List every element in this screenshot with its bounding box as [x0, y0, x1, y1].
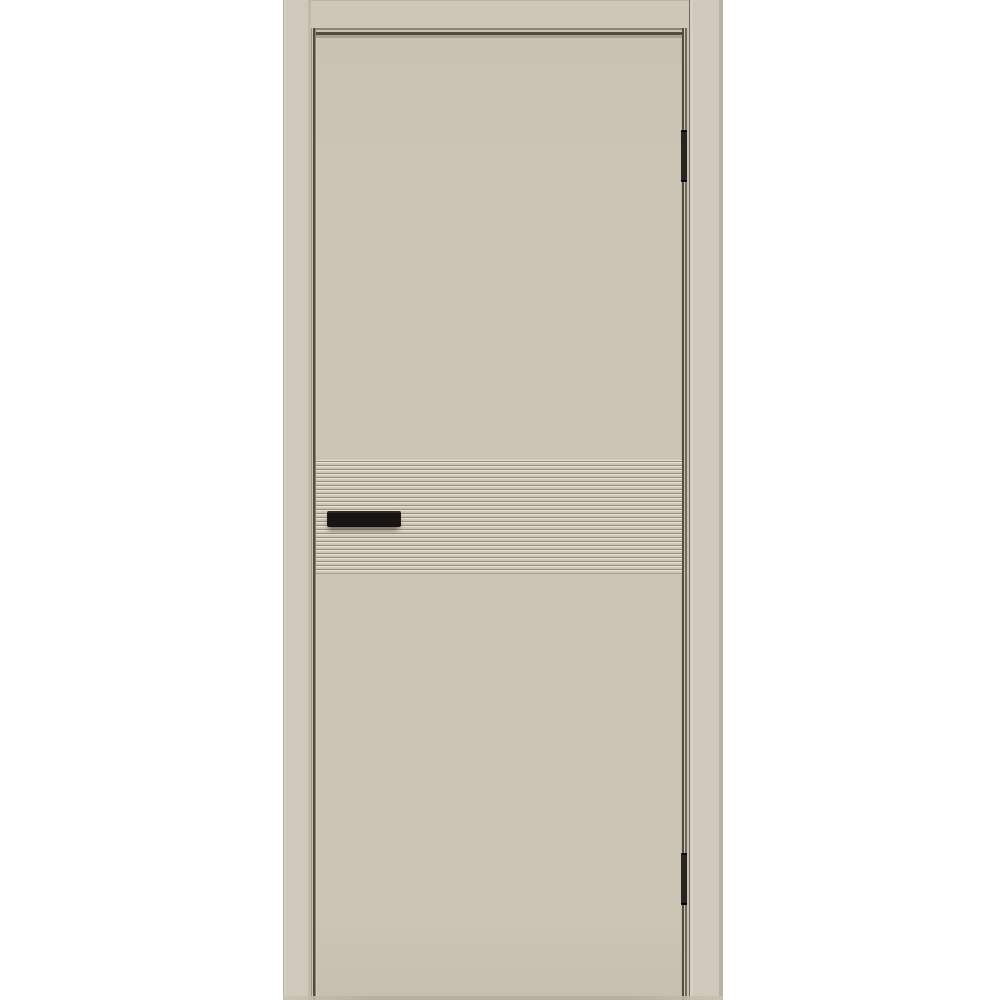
door-frame-right-casing — [689, 0, 723, 1000]
door-leaf — [316, 38, 682, 1000]
door-reveal-gap-top — [311, 28, 689, 38]
hinge-top-icon — [681, 130, 687, 182]
door-frame-head-casing — [311, 0, 689, 28]
hinge-bottom-icon — [681, 853, 687, 905]
door-frame-left-casing — [283, 0, 311, 1000]
bottom-edge-shadow — [283, 996, 723, 1000]
door-handle — [327, 511, 401, 527]
door-product-photo — [0, 0, 1000, 1000]
